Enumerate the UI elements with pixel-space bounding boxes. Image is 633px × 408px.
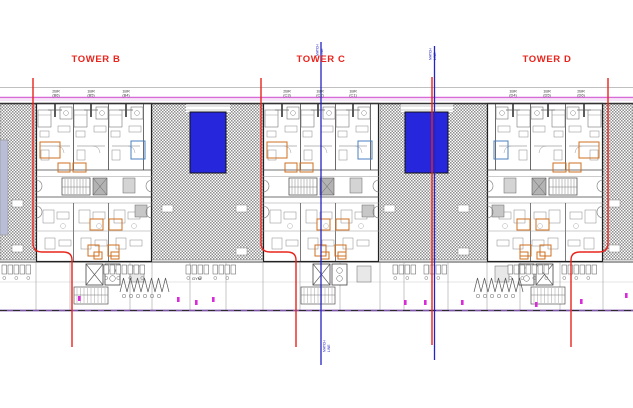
door-marker <box>580 299 583 304</box>
unit-id: (B5) <box>79 94 103 98</box>
unit-label: 1BR(D4) <box>501 90 525 98</box>
floor-plan-canvas: GYMMATCHLINEMATCHLINEMATCHLINE TOWER B T… <box>0 0 633 408</box>
unit-label: 1BR(C1) <box>341 90 365 98</box>
unit-label: 2BR(D6) <box>569 90 593 98</box>
door-marker <box>461 300 464 305</box>
tower-title-d: TOWER D <box>503 54 591 65</box>
pool <box>405 112 448 173</box>
door-marker <box>78 296 81 301</box>
unit-id: (B6) <box>44 94 68 98</box>
unit-label: 1BR(C2) <box>308 90 332 98</box>
door-marker <box>212 297 215 302</box>
unit-id: (C3) <box>275 94 299 98</box>
unit-id: (D4) <box>501 94 525 98</box>
door-marker <box>535 302 538 307</box>
door-marker <box>424 300 427 305</box>
unit-id: (B4) <box>114 94 138 98</box>
door-marker <box>404 300 407 305</box>
pool <box>190 112 226 173</box>
unit-id: (D6) <box>569 94 593 98</box>
unit-id: (C2) <box>308 94 332 98</box>
unit-label: 1BR(B4) <box>114 90 138 98</box>
match-line-caption: LINE <box>433 52 437 60</box>
door-marker <box>177 297 180 302</box>
unit-label: 2BR(C3) <box>275 90 299 98</box>
unit-label: 1BR(D5) <box>535 90 559 98</box>
unit-label: 2BR(B6) <box>44 90 68 98</box>
gym-label: GYM <box>192 276 201 281</box>
match-line-caption: LINE <box>327 344 331 352</box>
door-marker <box>195 300 198 305</box>
door-marker <box>625 293 628 298</box>
unit-id: (C1) <box>341 94 365 98</box>
edge-panel <box>0 140 8 235</box>
tower-title-b: TOWER B <box>52 54 140 65</box>
unit-label: 1BR(B5) <box>79 90 103 98</box>
unit-id: (D5) <box>535 94 559 98</box>
tower-title-c: TOWER C <box>277 54 365 65</box>
